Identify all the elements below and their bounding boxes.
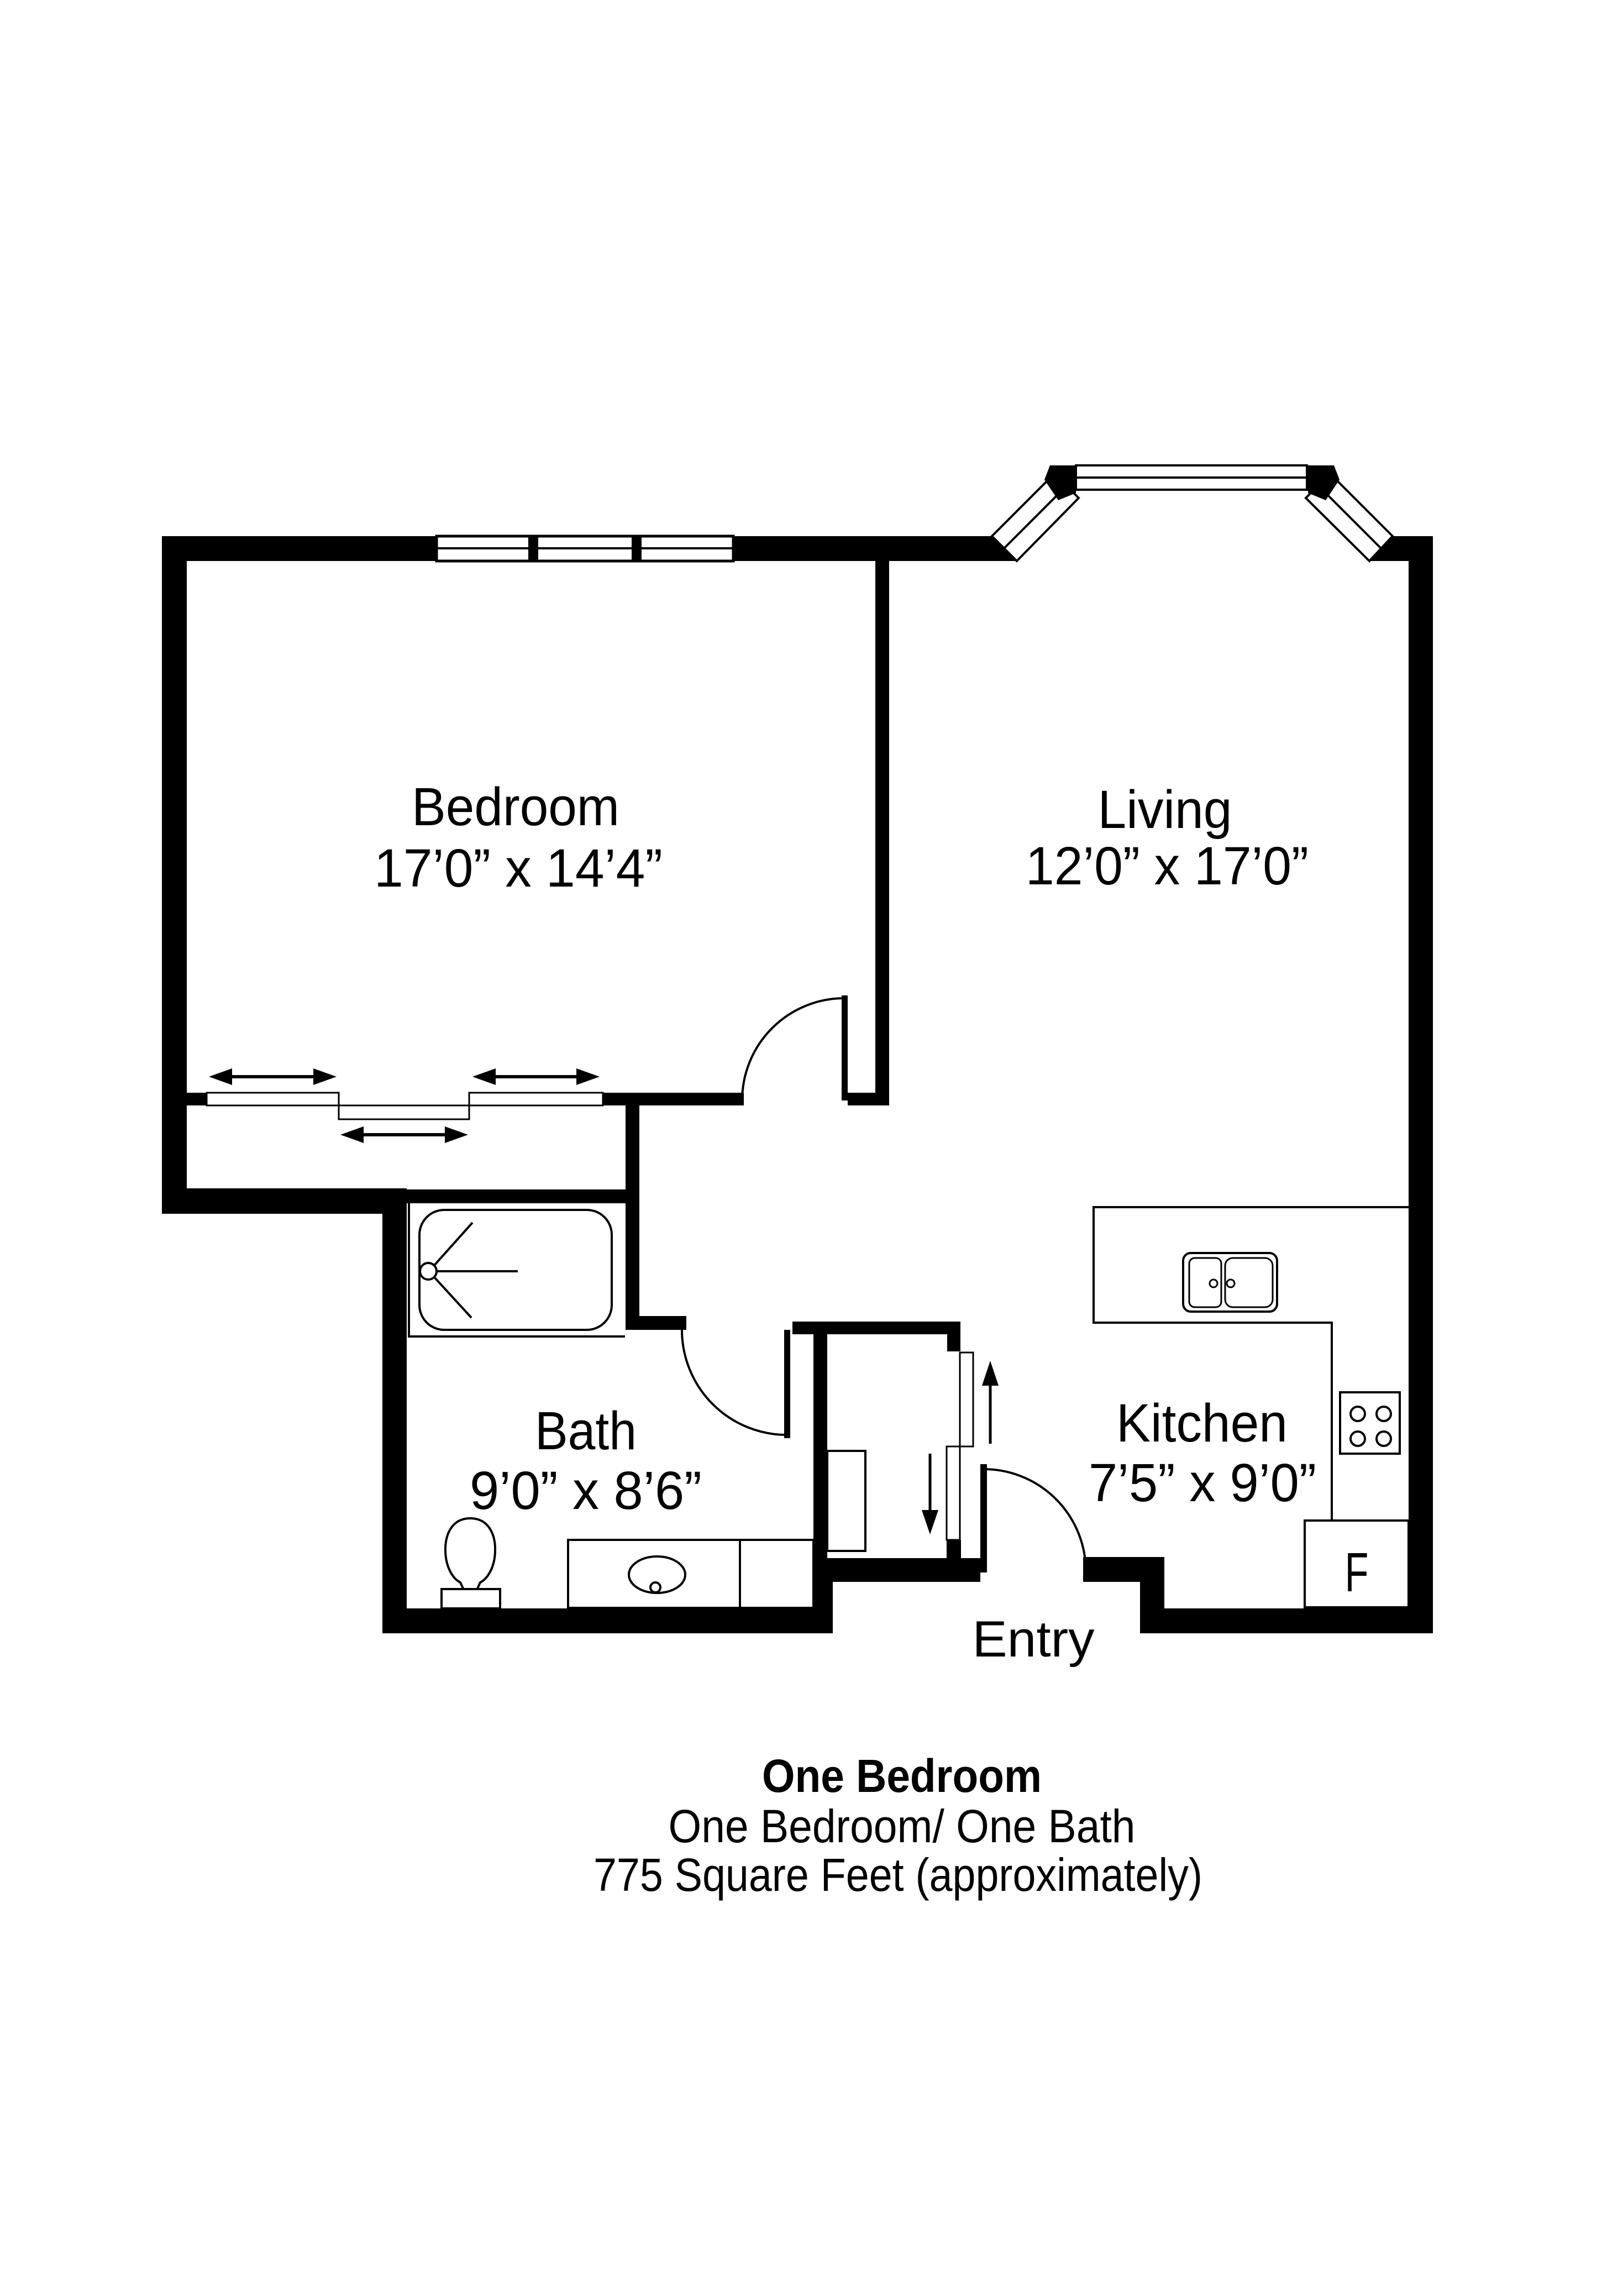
svg-text:9’0” x 8’6”: 9’0” x 8’6” xyxy=(470,1460,702,1521)
svg-text:7’5” x 9’0”: 7’5” x 9’0” xyxy=(1089,1453,1316,1513)
svg-text:Bedroom: Bedroom xyxy=(412,777,619,837)
svg-text:17’0” x 14’4”: 17’0” x 14’4” xyxy=(374,838,663,898)
svg-text:Living: Living xyxy=(1098,779,1232,840)
svg-text:F: F xyxy=(1345,1542,1369,1603)
svg-text:775 Square Feet (approximately: 775 Square Feet (approximately) xyxy=(593,1849,1202,1901)
svg-text:One Bedroom: One Bedroom xyxy=(762,1750,1042,1802)
svg-text:Bath: Bath xyxy=(535,1401,637,1461)
svg-text:12’0” x 17’0”: 12’0” x 17’0” xyxy=(1026,836,1309,896)
svg-text:Kitchen: Kitchen xyxy=(1116,1393,1288,1453)
svg-text:Entry: Entry xyxy=(973,1611,1095,1668)
svg-text:One Bedroom/ One Bath: One Bedroom/ One Bath xyxy=(669,1800,1136,1852)
